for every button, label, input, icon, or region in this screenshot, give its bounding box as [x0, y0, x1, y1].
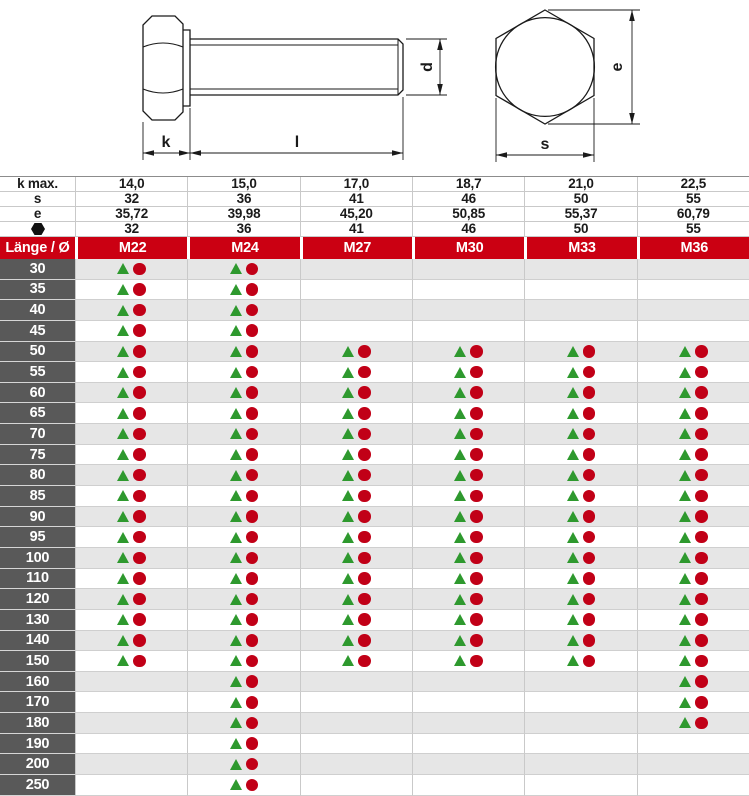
spec-row: e35,7239,9845,2050,8555,3760,79 — [0, 207, 749, 222]
circle-icon — [695, 613, 708, 626]
availability-cell — [300, 569, 412, 590]
availability-cell — [637, 362, 749, 383]
triangle-icon — [567, 367, 579, 378]
availability-cell — [524, 713, 636, 734]
triangle-icon — [117, 614, 129, 625]
availability-cell — [637, 445, 749, 466]
circle-icon — [470, 448, 483, 461]
table-row: 160 — [0, 672, 749, 693]
circle-icon — [470, 490, 483, 503]
triangle-icon — [117, 532, 129, 543]
spec-row-label: e — [0, 207, 75, 221]
spec-value-cell: 36 — [187, 222, 299, 236]
availability-cell — [412, 692, 524, 713]
availability-cell — [300, 775, 412, 796]
availability-cell — [300, 672, 412, 693]
triangle-icon — [567, 408, 579, 419]
table-row: 150 — [0, 651, 749, 672]
availability-cell — [524, 734, 636, 755]
triangle-icon — [567, 573, 579, 584]
circle-icon — [695, 655, 708, 668]
availability-cell — [412, 424, 524, 445]
circle-icon — [133, 283, 146, 296]
triangle-icon — [679, 511, 691, 522]
circle-icon — [246, 634, 259, 647]
spec-value-cell: 15,0 — [187, 177, 299, 191]
availability-cell — [412, 775, 524, 796]
triangle-icon — [679, 573, 691, 584]
availability-cell — [300, 754, 412, 775]
length-cell: 170 — [0, 692, 75, 713]
spec-row: k max.14,015,017,018,721,022,5 — [0, 177, 749, 192]
circle-icon — [358, 407, 371, 420]
availability-cell — [524, 403, 636, 424]
length-cell: 100 — [0, 548, 75, 569]
triangle-icon — [679, 676, 691, 687]
circle-icon — [695, 717, 708, 730]
availability-cell — [300, 713, 412, 734]
circle-icon — [470, 510, 483, 523]
triangle-icon — [342, 511, 354, 522]
availability-cell — [75, 672, 187, 693]
availability-cell — [524, 383, 636, 404]
table-row: 75 — [0, 445, 749, 466]
circle-icon — [246, 593, 259, 606]
triangle-icon — [342, 387, 354, 398]
circle-icon — [246, 490, 259, 503]
length-cell: 110 — [0, 569, 75, 590]
availability-cell — [300, 548, 412, 569]
availability-cell — [637, 713, 749, 734]
triangle-icon — [230, 676, 242, 687]
table-row: 140 — [0, 631, 749, 652]
dim-label-e: e — [609, 62, 626, 71]
triangle-icon — [342, 635, 354, 646]
triangle-icon — [230, 305, 242, 316]
table-row: 90 — [0, 507, 749, 528]
availability-cell — [524, 651, 636, 672]
availability-cell — [524, 280, 636, 301]
triangle-icon — [117, 263, 129, 274]
circle-icon — [246, 469, 259, 482]
circle-icon — [246, 263, 259, 276]
circle-icon — [246, 366, 259, 379]
spec-value-cell: 55,37 — [524, 207, 636, 221]
triangle-icon — [679, 635, 691, 646]
availability-cell — [524, 507, 636, 528]
spec-value-cell: 39,98 — [187, 207, 299, 221]
circle-icon — [133, 593, 146, 606]
length-cell: 160 — [0, 672, 75, 693]
spec-row-label: s — [0, 192, 75, 206]
table-row: 190 — [0, 734, 749, 755]
circle-icon — [470, 531, 483, 544]
length-cell: 140 — [0, 631, 75, 652]
availability-cell — [187, 259, 299, 280]
availability-cell — [187, 342, 299, 363]
table-row: 100 — [0, 548, 749, 569]
availability-cell — [637, 300, 749, 321]
triangle-icon — [342, 573, 354, 584]
availability-cell — [300, 321, 412, 342]
triangle-icon — [230, 738, 242, 749]
triangle-icon — [567, 655, 579, 666]
triangle-icon — [342, 490, 354, 501]
availability-cell — [524, 424, 636, 445]
circle-icon — [358, 552, 371, 565]
spec-value-cell: 50 — [524, 222, 636, 236]
availability-cell — [412, 754, 524, 775]
length-cell: 130 — [0, 610, 75, 631]
availability-cell — [637, 589, 749, 610]
availability-cell — [637, 548, 749, 569]
availability-cell — [524, 486, 636, 507]
triangle-icon — [454, 387, 466, 398]
availability-cell — [524, 362, 636, 383]
circle-icon — [246, 283, 259, 296]
circle-icon — [133, 366, 146, 379]
triangle-icon — [117, 325, 129, 336]
bolt-technical-drawing: d k l e s — [0, 0, 749, 176]
size-column-header: M27 — [300, 237, 412, 259]
circle-icon — [583, 593, 596, 606]
availability-cell — [412, 734, 524, 755]
triangle-icon — [454, 594, 466, 605]
triangle-icon — [342, 449, 354, 460]
triangle-icon — [117, 284, 129, 295]
triangle-icon — [567, 490, 579, 501]
end-view-dimensions — [496, 10, 640, 162]
triangle-icon — [230, 614, 242, 625]
availability-cell — [637, 692, 749, 713]
availability-cell — [637, 672, 749, 693]
availability-cell — [412, 569, 524, 590]
circle-icon — [358, 572, 371, 585]
circle-icon — [695, 531, 708, 544]
availability-cell — [187, 445, 299, 466]
length-cell: 200 — [0, 754, 75, 775]
triangle-icon — [342, 346, 354, 357]
length-cell: 75 — [0, 445, 75, 466]
dim-label-k: k — [162, 134, 171, 151]
table-row: 40 — [0, 300, 749, 321]
triangle-icon — [117, 408, 129, 419]
availability-cell — [187, 692, 299, 713]
dim-label-s: s — [541, 136, 550, 153]
bolt-catalog-page: d k l e s k max.14,015,017,018,721,0 — [0, 0, 749, 796]
availability-cell — [75, 300, 187, 321]
availability-cell — [187, 569, 299, 590]
circle-icon — [133, 263, 146, 276]
triangle-icon — [454, 408, 466, 419]
availability-cell — [75, 610, 187, 631]
availability-cell — [75, 362, 187, 383]
availability-cell — [637, 631, 749, 652]
triangle-icon — [230, 511, 242, 522]
triangle-icon — [117, 387, 129, 398]
spec-value-cell: 32 — [75, 222, 187, 236]
triangle-icon — [454, 490, 466, 501]
triangle-icon — [679, 408, 691, 419]
circle-icon — [470, 552, 483, 565]
triangle-icon — [342, 470, 354, 481]
dimension-spec-rows: k max.14,015,017,018,721,022,5s323641465… — [0, 176, 749, 237]
circle-icon — [695, 490, 708, 503]
triangle-icon — [117, 655, 129, 666]
length-cell: 120 — [0, 589, 75, 610]
circle-icon — [246, 510, 259, 523]
circle-icon — [583, 552, 596, 565]
availability-cell — [412, 362, 524, 383]
availability-cell — [637, 610, 749, 631]
circle-icon — [133, 572, 146, 585]
availability-cell — [637, 486, 749, 507]
circle-icon — [133, 386, 146, 399]
triangle-icon — [679, 552, 691, 563]
triangle-icon — [679, 387, 691, 398]
circle-icon — [246, 324, 259, 337]
size-column-header: M30 — [412, 237, 524, 259]
availability-cell — [187, 548, 299, 569]
circle-icon — [470, 634, 483, 647]
availability-cell — [75, 486, 187, 507]
availability-cell — [524, 548, 636, 569]
circle-icon — [133, 634, 146, 647]
circle-icon — [133, 655, 146, 668]
triangle-icon — [342, 594, 354, 605]
end-view-arrowheads — [496, 10, 635, 158]
triangle-icon — [342, 614, 354, 625]
triangle-icon — [454, 614, 466, 625]
circle-icon — [246, 304, 259, 317]
availability-cell — [75, 342, 187, 363]
circle-icon — [470, 428, 483, 441]
availability-cell — [637, 734, 749, 755]
circle-icon — [358, 428, 371, 441]
availability-cell — [75, 280, 187, 301]
triangle-icon — [454, 470, 466, 481]
triangle-icon — [342, 408, 354, 419]
circle-icon — [133, 510, 146, 523]
availability-cell — [412, 527, 524, 548]
length-cell: 55 — [0, 362, 75, 383]
availability-cell — [300, 610, 412, 631]
triangle-icon — [230, 284, 242, 295]
availability-cell — [637, 569, 749, 590]
circle-icon — [358, 490, 371, 503]
circle-icon — [695, 428, 708, 441]
spec-value-cell: 55 — [637, 222, 749, 236]
availability-cell — [412, 259, 524, 280]
availability-cell — [187, 527, 299, 548]
availability-cell — [187, 465, 299, 486]
availability-cell — [187, 610, 299, 631]
circle-icon — [246, 675, 259, 688]
availability-cell — [187, 486, 299, 507]
availability-cell — [187, 734, 299, 755]
circle-icon — [358, 634, 371, 647]
circle-icon — [583, 448, 596, 461]
table-row: 60 — [0, 383, 749, 404]
circle-icon — [695, 552, 708, 565]
table-row: 35 — [0, 280, 749, 301]
circle-icon — [470, 366, 483, 379]
triangle-icon — [342, 552, 354, 563]
availability-cell — [75, 713, 187, 734]
triangle-icon — [567, 346, 579, 357]
triangle-icon — [230, 263, 242, 274]
spec-row: 323641465055 — [0, 222, 749, 237]
bolt-side-view — [143, 16, 403, 120]
circle-icon — [695, 572, 708, 585]
availability-cell — [637, 259, 749, 280]
triangle-icon — [454, 449, 466, 460]
availability-cell — [412, 486, 524, 507]
circle-icon — [695, 675, 708, 688]
availability-cell — [637, 507, 749, 528]
circle-icon — [583, 634, 596, 647]
length-cell: 70 — [0, 424, 75, 445]
triangle-icon — [567, 511, 579, 522]
length-cell: 250 — [0, 775, 75, 796]
triangle-icon — [117, 635, 129, 646]
circle-icon — [695, 407, 708, 420]
triangle-icon — [230, 635, 242, 646]
spec-value-cell: 60,79 — [637, 207, 749, 221]
availability-cell — [300, 342, 412, 363]
triangle-icon — [454, 573, 466, 584]
availability-cell — [637, 280, 749, 301]
availability-cell — [524, 692, 636, 713]
triangle-icon — [230, 367, 242, 378]
triangle-icon — [230, 552, 242, 563]
spec-row: s323641465055 — [0, 192, 749, 207]
availability-cell — [412, 672, 524, 693]
triangle-icon — [567, 552, 579, 563]
circle-icon — [246, 345, 259, 358]
circle-icon — [133, 469, 146, 482]
availability-cell — [187, 754, 299, 775]
table-row: 45 — [0, 321, 749, 342]
availability-cell — [524, 589, 636, 610]
circle-icon — [246, 758, 259, 771]
length-cell: 190 — [0, 734, 75, 755]
circle-icon — [133, 428, 146, 441]
triangle-icon — [454, 635, 466, 646]
availability-cell — [187, 403, 299, 424]
circle-icon — [695, 366, 708, 379]
triangle-icon — [679, 346, 691, 357]
spec-value-cell: 46 — [412, 192, 524, 206]
dim-label-d: d — [419, 62, 436, 72]
availability-cell — [300, 692, 412, 713]
triangle-icon — [230, 717, 242, 728]
size-column-header: M33 — [524, 237, 636, 259]
availability-cell — [524, 569, 636, 590]
availability-cell — [524, 672, 636, 693]
availability-cell — [75, 259, 187, 280]
triangle-icon — [567, 387, 579, 398]
triangle-icon — [230, 325, 242, 336]
availability-cell — [412, 321, 524, 342]
circle-icon — [246, 717, 259, 730]
triangle-icon — [230, 594, 242, 605]
circle-icon — [133, 448, 146, 461]
availability-cell — [300, 300, 412, 321]
circle-icon — [358, 510, 371, 523]
availability-cell — [300, 424, 412, 445]
availability-cell — [187, 507, 299, 528]
triangle-icon — [117, 449, 129, 460]
circle-icon — [695, 345, 708, 358]
triangle-icon — [679, 614, 691, 625]
triangle-icon — [230, 470, 242, 481]
availability-cell — [75, 507, 187, 528]
availability-cell — [524, 775, 636, 796]
circle-icon — [470, 386, 483, 399]
circle-icon — [246, 407, 259, 420]
circle-icon — [695, 634, 708, 647]
availability-cell — [300, 280, 412, 301]
triangle-icon — [454, 367, 466, 378]
availability-cell — [412, 589, 524, 610]
availability-cell — [524, 465, 636, 486]
triangle-icon — [230, 697, 242, 708]
triangle-icon — [117, 470, 129, 481]
triangle-icon — [230, 759, 242, 770]
length-cell: 45 — [0, 321, 75, 342]
availability-cell — [300, 734, 412, 755]
availability-cell — [75, 424, 187, 445]
availability-cell — [524, 754, 636, 775]
availability-cell — [187, 280, 299, 301]
circle-icon — [133, 407, 146, 420]
table-row: 250 — [0, 775, 749, 796]
triangle-icon — [342, 655, 354, 666]
triangle-icon — [230, 428, 242, 439]
circle-icon — [583, 407, 596, 420]
availability-cell — [300, 589, 412, 610]
length-cell: 50 — [0, 342, 75, 363]
availability-cell — [637, 342, 749, 363]
triangle-icon — [117, 490, 129, 501]
hex-nut-icon — [31, 223, 45, 235]
availability-cell — [412, 631, 524, 652]
size-column-header: M36 — [637, 237, 749, 259]
availability-cell — [187, 424, 299, 445]
triangle-icon — [679, 532, 691, 543]
triangle-icon — [679, 490, 691, 501]
circle-icon — [246, 779, 259, 792]
availability-cell — [412, 300, 524, 321]
circle-icon — [695, 593, 708, 606]
circle-icon — [358, 655, 371, 668]
length-cell: 95 — [0, 527, 75, 548]
table-row: 120 — [0, 589, 749, 610]
table-row: 170 — [0, 692, 749, 713]
circle-icon — [583, 428, 596, 441]
triangle-icon — [230, 346, 242, 357]
circle-icon — [358, 448, 371, 461]
circle-icon — [246, 613, 259, 626]
availability-rows: 3035404550556065707580859095100110120130… — [0, 259, 749, 796]
availability-cell — [75, 692, 187, 713]
circle-icon — [246, 386, 259, 399]
availability-cell — [75, 631, 187, 652]
circle-icon — [133, 552, 146, 565]
spec-row-label — [0, 222, 75, 236]
availability-cell — [75, 321, 187, 342]
